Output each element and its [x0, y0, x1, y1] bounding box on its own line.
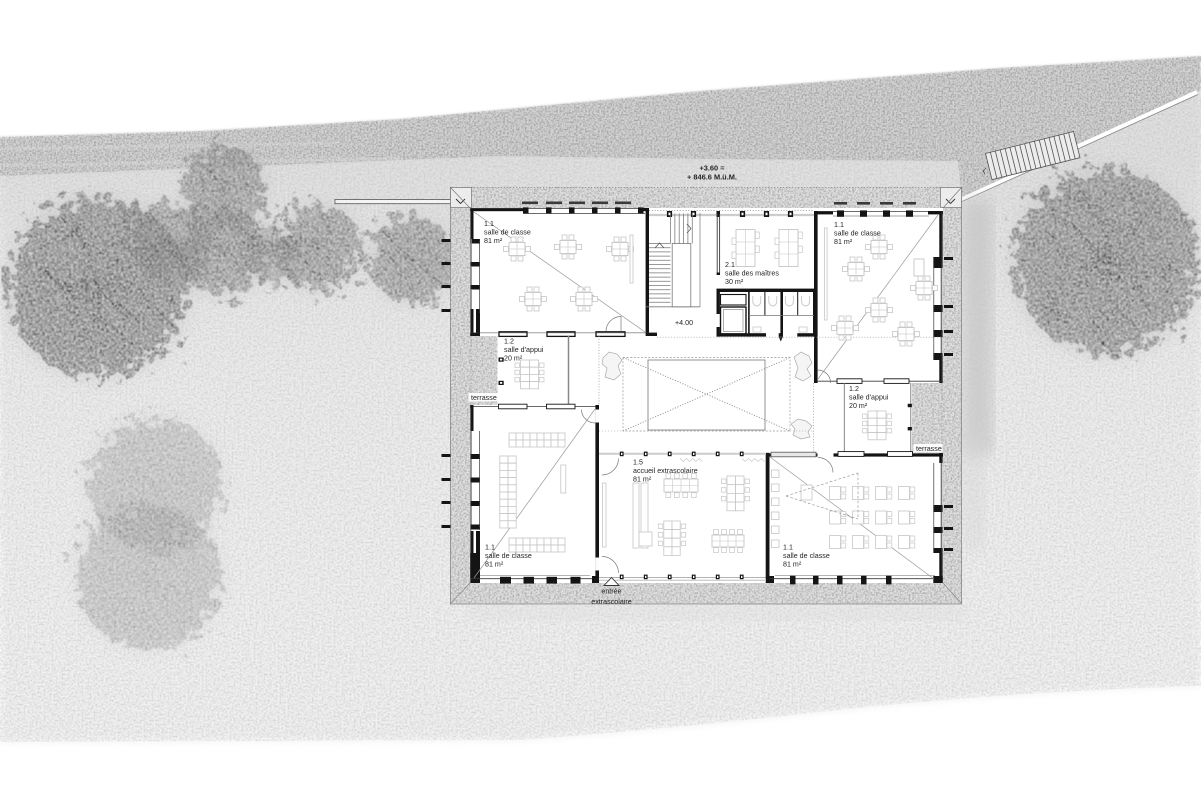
svg-text:accueil extrascolaire: accueil extrascolaire	[633, 467, 698, 475]
svg-text:81 m²: 81 m²	[633, 476, 652, 484]
svg-text:salle d'appui: salle d'appui	[849, 394, 889, 402]
svg-text:salle de classe: salle de classe	[834, 230, 881, 238]
svg-text:1.5: 1.5	[633, 459, 643, 467]
svg-text:+ 846.6 M.ü.M.: + 846.6 M.ü.M.	[687, 172, 737, 181]
svg-text:terrasse: terrasse	[916, 445, 942, 453]
svg-text:81 m²: 81 m²	[834, 238, 853, 246]
svg-text:20 m²: 20 m²	[849, 402, 868, 410]
svg-text:1.1: 1.1	[484, 220, 494, 228]
svg-text:salle des maîtres: salle des maîtres	[725, 270, 779, 278]
svg-text:2.1: 2.1	[725, 261, 735, 269]
svg-text:81 m²: 81 m²	[484, 237, 503, 245]
svg-text:1.1: 1.1	[485, 544, 495, 552]
svg-text:salle d'appui: salle d'appui	[504, 346, 544, 354]
svg-text:1.2: 1.2	[504, 338, 514, 346]
svg-text:salle de classe: salle de classe	[783, 552, 830, 560]
svg-text:entrée: entrée	[601, 588, 621, 596]
svg-text:+4.00: +4.00	[675, 319, 693, 327]
svg-text:+3.60 =: +3.60 =	[699, 164, 725, 173]
svg-text:20 m²: 20 m²	[504, 355, 523, 363]
svg-text:81 m²: 81 m²	[783, 561, 802, 569]
svg-text:1.1: 1.1	[783, 544, 793, 552]
svg-text:1.2: 1.2	[849, 385, 859, 393]
svg-text:1.1: 1.1	[834, 221, 844, 229]
svg-text:81 m²: 81 m²	[485, 561, 504, 569]
svg-text:extrascolaire: extrascolaire	[591, 598, 632, 606]
svg-text:salle de classe: salle de classe	[484, 229, 531, 237]
svg-text:30 m²: 30 m²	[725, 278, 744, 286]
svg-text:terrasse: terrasse	[471, 394, 497, 402]
svg-text:salle de classe: salle de classe	[485, 552, 532, 560]
